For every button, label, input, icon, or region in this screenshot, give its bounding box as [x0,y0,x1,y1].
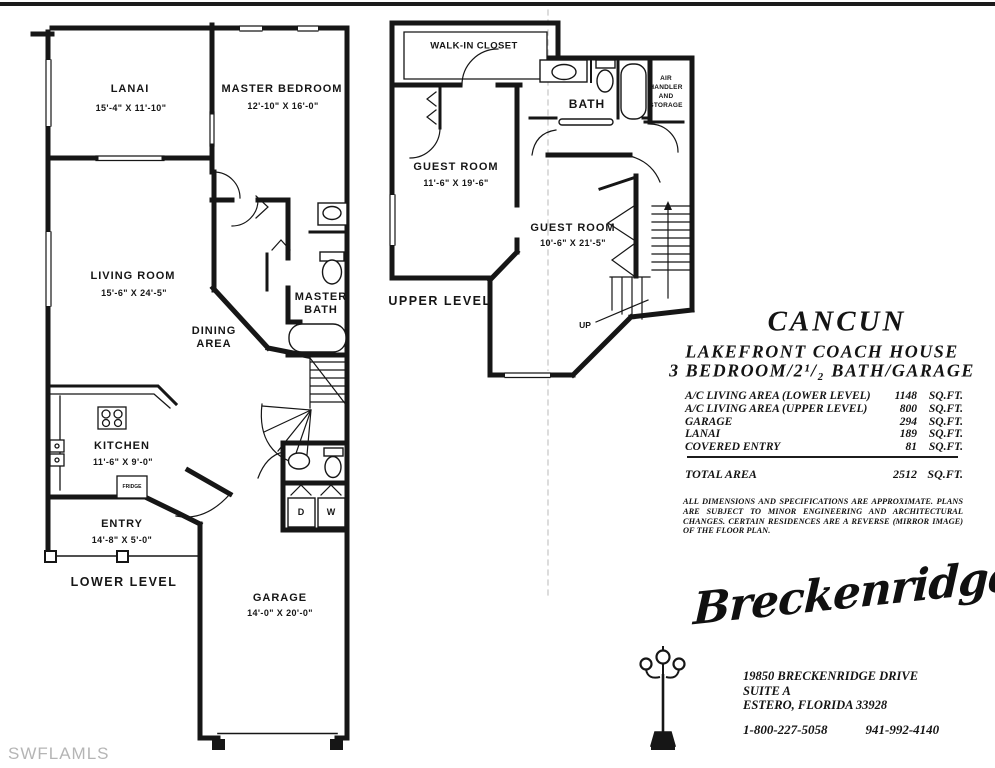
lower-level-walls [33,25,347,738]
room-label-air-handler: AIR HANDLER AND STORAGE [649,74,682,110]
room-label-bath: BATH [569,97,605,111]
room-label-walk-in-closet: WALK-IN CLOSET [430,41,517,52]
room-dims-lanai: 15'-4" X 11'-10" [96,103,167,113]
address-line-3: ESTERO, FLORIDA 33928 [743,698,918,713]
room-label-master-bath: MASTER BATH [295,291,347,317]
area-row: A/C LIVING AREA (LOWER LEVEL) 1148 SQ.FT… [685,390,963,403]
plan-subtitle-1: LAKEFRONT COACH HOUSE [685,342,959,363]
room-label-entry: ENTRY [101,518,143,530]
area-table: A/C LIVING AREA (LOWER LEVEL) 1148 SQ.FT… [685,390,963,454]
lamppost-icon [641,646,685,750]
room-label-dining-area: DINING AREA [192,325,237,351]
room-label-kitchen: KITCHEN [94,440,150,452]
room-dims-living-room: 15'-6" X 24'-5" [101,288,167,298]
mls-watermark: SWFLAMLS [8,744,110,764]
lower-level-label: LOWER LEVEL [71,575,178,589]
phone-number-1: 1-800-227-5058 [743,722,828,738]
total-area-row: TOTAL AREA 2512 SQ.FT. [685,467,963,482]
washer-label: W [327,507,336,517]
disclaimer-text: ALL DIMENSIONS AND SPECIFICATIONS ARE AP… [683,497,963,536]
area-row: GARAGE 294 SQ.FT. [685,416,963,429]
floor-plan-sheet: { "page": { "watermark": "SWFLAMLS" }, "… [0,0,995,768]
room-label-guest-room-1: GUEST ROOM [413,161,498,173]
room-dims-kitchen: 11'-6" X 9'-0" [93,457,153,467]
area-row: COVERED ENTRY 81 SQ.FT. [685,441,963,454]
phone-number-2: 941-992-4140 [866,722,940,738]
upper-bath-fixtures [540,60,646,125]
room-dims-guest-room-2: 10'-6" X 21'-5" [540,238,606,248]
master-bath-fixtures [289,203,347,352]
area-row: A/C LIVING AREA (UPPER LEVEL) 800 SQ.FT. [685,403,963,416]
address-line-2: SUITE A [743,684,918,699]
plan-subtitle-2: 3 BEDROOM/2¹/₂ BATH/GARAGE [669,361,975,382]
upper-level-label: UPPER LEVEL [388,294,491,308]
room-label-living-room: LIVING ROOM [91,270,176,282]
fridge-label: FRIDGE [123,484,142,490]
laundry-fixtures [288,498,345,527]
room-dims-master-bedroom: 12'-10" X 16'-0" [247,101,318,111]
address-line-1: 19850 BRECKENRIDGE DRIVE [743,669,918,684]
room-dims-entry: 14'-8" X 5'-0" [92,535,152,545]
room-label-guest-room-2: GUEST ROOM [530,222,615,234]
area-row: LANAI 189 SQ.FT. [685,428,963,441]
room-label-lanai: LANAI [111,83,150,95]
dryer-label: D [298,507,305,517]
plan-name-title: CANCUN [768,306,907,339]
room-label-master-bedroom: MASTER BEDROOM [222,83,343,95]
room-dims-guest-room-1: 11'-6" X 19'-6" [423,178,488,188]
builder-address: 19850 BRECKENRIDGE DRIVE SUITE A ESTERO,… [743,669,918,713]
room-label-garage: GARAGE [253,592,307,604]
floor-plan-linework [0,0,995,768]
up-label: UP [579,320,591,330]
builder-phones: 1-800-227-5058 941-992-4140 [743,722,939,738]
room-dims-garage: 14'-0" X 20'-0" [247,608,313,618]
table-divider [687,456,958,458]
